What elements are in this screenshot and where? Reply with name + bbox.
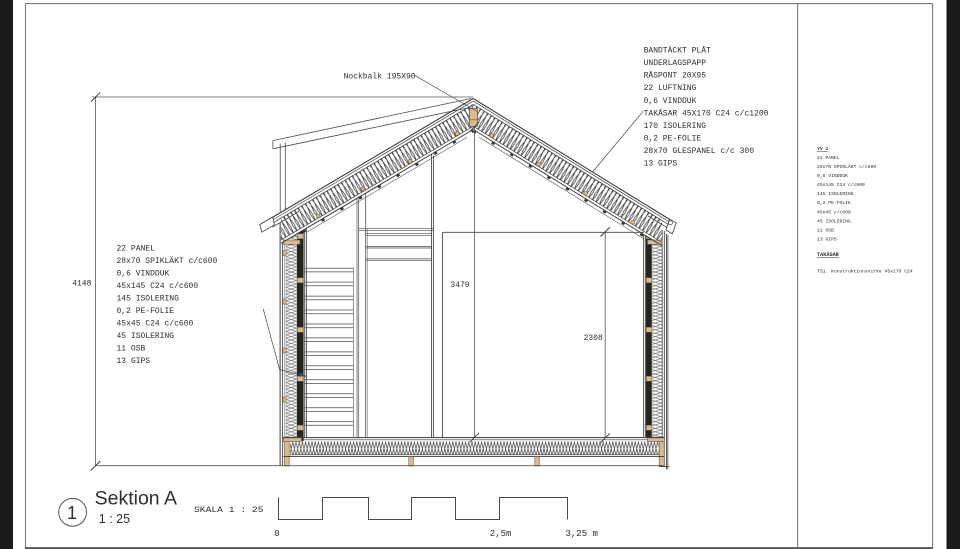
svg-text:0,2 PE-FOLIE: 0,2 PE-FOLIE [817, 200, 851, 206]
svg-text:11 OSB: 11 OSB [117, 344, 146, 353]
svg-text:22 PANEL: 22 PANEL [117, 245, 156, 254]
svg-text:145 ISOLERING: 145 ISOLERING [117, 295, 180, 304]
svg-text:45x45 c/c600: 45x45 c/c600 [817, 209, 851, 215]
svg-text:45x45 C24 c/c600: 45x45 C24 c/c600 [117, 319, 194, 328]
svg-text:BANDTÄCKT PLÅT: BANDTÄCKT PLÅT [644, 47, 711, 56]
svg-text:UNDERLAGSPAPP: UNDERLAGSPAPP [644, 59, 707, 68]
svg-text:28x70 SPIKLÄKT c/c600: 28x70 SPIKLÄKT c/c600 [817, 163, 876, 170]
svg-text:0,6 VINDDUK: 0,6 VINDDUK [817, 173, 848, 179]
svg-text:YV 1: YV 1 [817, 146, 828, 152]
svg-text:13 GIPS: 13 GIPS [117, 357, 151, 366]
svg-text:13 GIPS: 13 GIPS [817, 236, 837, 242]
svg-text:28x70 GLESPANEL c/c 300: 28x70 GLESPANEL c/c 300 [644, 147, 755, 156]
svg-text:RÅSPONT 20X95: RÅSPONT 20X95 [644, 72, 707, 81]
svg-text:145 ISOLERING: 145 ISOLERING [817, 191, 854, 197]
svg-text:0: 0 [274, 529, 279, 539]
svg-text:1 : 25: 1 : 25 [99, 512, 130, 526]
svg-text:SKALA 1 : 25: SKALA 1 : 25 [194, 507, 264, 515]
svg-text:0,6 VINDDUK: 0,6 VINDDUK [644, 97, 697, 106]
svg-text:45 ISOLERING: 45 ISOLERING [117, 332, 175, 341]
svg-text:TAKÅSAR: TAKÅSAR [817, 251, 840, 258]
svg-text:0,2 PE-FOLIE: 0,2 PE-FOLIE [644, 135, 702, 144]
svg-text:TAKÅSAR 45X170 C24 c/c1200: TAKÅSAR 45X170 C24 c/c1200 [644, 109, 769, 118]
svg-text:1: 1 [67, 503, 77, 523]
svg-text:3,25 m: 3,25 m [566, 529, 598, 539]
svg-text:13 GIPS: 13 GIPS [644, 160, 678, 169]
svg-text:Sektion A: Sektion A [95, 487, 177, 509]
svg-text:3479: 3479 [450, 281, 469, 290]
svg-text:170 ISOLERING: 170 ISOLERING [644, 122, 707, 131]
svg-text:4148: 4148 [72, 279, 91, 288]
svg-text:Nockbalk 195X90: Nockbalk 195X90 [344, 72, 416, 81]
svg-text:22 LUFTNING: 22 LUFTNING [644, 84, 697, 93]
svg-text:0,2 PE-FOLIE: 0,2 PE-FOLIE [117, 307, 175, 316]
svg-text:TS1. Konstruktionsvirke 45x170: TS1. Konstruktionsvirke 45x170 C24 [817, 269, 913, 275]
svg-text:45x145 C24 c/c600: 45x145 C24 c/c600 [817, 182, 865, 188]
svg-text:22 PANEL: 22 PANEL [817, 155, 840, 161]
svg-text:45 ISOLERING: 45 ISOLERING [817, 218, 851, 224]
svg-text:0,6 VINDDUK: 0,6 VINDDUK [117, 270, 170, 279]
svg-text:2,5m: 2,5m [490, 529, 512, 539]
svg-text:45x145 C24 c/c600: 45x145 C24 c/c600 [117, 282, 199, 291]
svg-text:2308: 2308 [584, 334, 603, 343]
svg-text:11 OSB: 11 OSB [817, 227, 834, 233]
svg-text:28x70 SPIKLÄKT c/c600: 28x70 SPIKLÄKT c/c600 [117, 257, 218, 266]
